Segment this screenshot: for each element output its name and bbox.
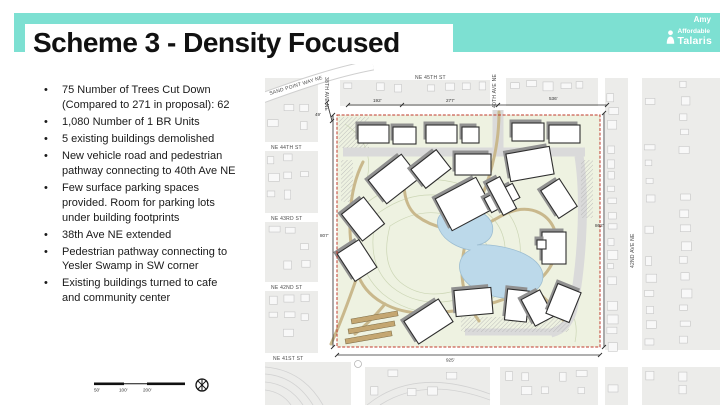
street-ave38: 38TH AVE NE — [323, 77, 329, 111]
bullet-dot: • — [44, 228, 48, 243]
slide-title: Scheme 3 - Density Focused — [25, 24, 453, 59]
street-ave40: 40TH AVE NE — [492, 74, 498, 108]
bullet-text: 75 Number of Trees Cut Down (Compared to… — [62, 84, 230, 111]
street-ne43: NE 43RD ST — [271, 216, 302, 222]
north-arrow-icon — [196, 379, 208, 392]
bullet-dot: • — [44, 132, 48, 147]
bullet-text: New vehicle road and pedestrian pathway … — [62, 150, 235, 177]
roundabout — [355, 361, 362, 368]
talaris-logo: Affordable Talaris — [665, 29, 712, 46]
street-ne45: NE 45TH ST — [415, 75, 446, 81]
logo-line2: Talaris — [678, 36, 712, 47]
bullet-dot: • — [44, 83, 48, 98]
bullet-item: •5 existing buildings demolished — [40, 132, 238, 147]
dim-807: 807' — [320, 233, 329, 238]
dim-862: 862' — [595, 223, 604, 228]
bullet-dot: • — [44, 149, 48, 164]
bullet-text: Few surface parking spaces provided. Roo… — [62, 182, 215, 224]
bullet-item: •Existing buildings turned to cafe and c… — [40, 276, 238, 306]
bullet-text: 5 existing buildings demolished — [62, 133, 214, 145]
scale-segment — [147, 383, 185, 386]
bullet-list: •75 Number of Trees Cut Down (Compared t… — [40, 83, 238, 308]
scale-label-100: 100' — [119, 388, 128, 393]
bullet-text: Pedestrian pathway connecting to Yesler … — [62, 246, 227, 273]
scale-segment — [94, 383, 124, 386]
scale-label-200: 200' — [143, 388, 152, 393]
bullet-item: •Few surface parking spaces provided. Ro… — [40, 181, 238, 226]
bullet-text: 38th Ave NE extended — [62, 229, 171, 241]
bullet-item: •38th Ave NE extended — [40, 228, 238, 243]
bullet-item: •Pedestrian pathway connecting to Yesler… — [40, 245, 238, 275]
title-box: Scheme 3 - Density Focused — [25, 24, 453, 62]
bullet-dot: • — [44, 245, 48, 260]
presenter-name: Amy — [694, 15, 711, 24]
bullet-text: 1,080 Number of 1 BR Units — [62, 116, 200, 128]
dim-192: 192' — [373, 98, 382, 103]
scale-label-50: 50' — [94, 388, 100, 393]
talaris-logo-icon — [665, 30, 676, 45]
site-plan-map: 192' 277' 536' 807' 862' 925' 49' NE 45T… — [265, 64, 720, 405]
bullet-item: •1,080 Number of 1 BR Units — [40, 115, 238, 130]
dim-49: 49' — [315, 112, 321, 117]
dim-277: 277' — [446, 98, 455, 103]
scale-bar: 50' 100' 200' — [92, 377, 217, 399]
bullet-dot: • — [44, 276, 48, 291]
site-area — [331, 110, 600, 347]
street-ne41: NE 41ST ST — [273, 356, 303, 362]
bullet-dot: • — [44, 115, 48, 130]
bullet-item: •75 Number of Trees Cut Down (Compared t… — [40, 83, 238, 113]
street-ave42: 42ND AVE NE — [630, 233, 636, 268]
street-ne42: NE 42ND ST — [271, 285, 302, 291]
bullet-item: •New vehicle road and pedestrian pathway… — [40, 149, 238, 179]
bullet-dot: • — [44, 181, 48, 196]
dim-536: 536' — [549, 96, 558, 101]
bullet-text: Existing buildings turned to cafe and co… — [62, 277, 217, 304]
street-ne44: NE 44TH ST — [271, 145, 302, 151]
dim-925: 925' — [446, 358, 455, 363]
